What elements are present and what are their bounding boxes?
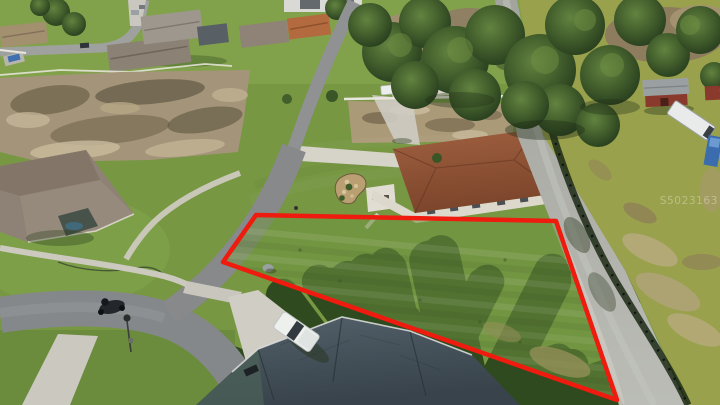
dirt-field (0, 70, 250, 162)
aerial-photograph: S5023163 (0, 0, 720, 405)
red-shed (705, 86, 720, 101)
car-on-street (80, 43, 89, 49)
neighbor-house-dark (197, 23, 229, 46)
mls-watermark: S5023163 (660, 195, 718, 207)
shrub (432, 153, 442, 163)
aerial-photo-canvas: S5023163 (0, 0, 720, 405)
